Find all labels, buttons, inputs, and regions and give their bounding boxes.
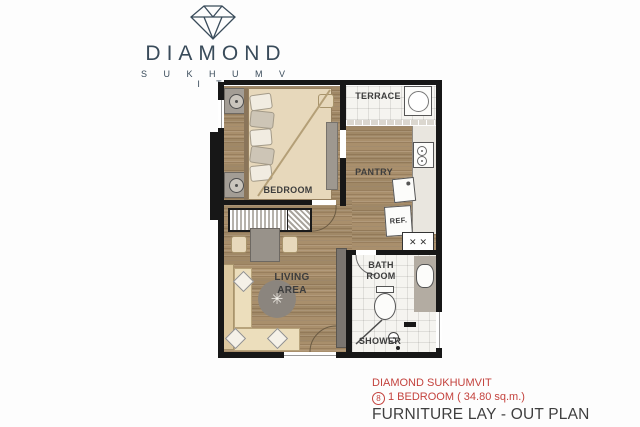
caption-unit: 8 1 BEDROOM ( 34.80 sq.m.) — [372, 392, 590, 405]
label-bedroom: BEDROOM — [258, 185, 318, 196]
brand-name: DIAMOND — [133, 42, 293, 66]
unit-number-badge: 8 — [372, 392, 385, 405]
floor-plan: ✳ REF. ✕✕ — [200, 78, 444, 360]
label-living: LIVING AREA — [266, 272, 318, 297]
caption-title: FURNITURE LAY - OUT PLAN — [372, 407, 590, 423]
plan-line-overlay — [200, 78, 444, 360]
label-terrace: TERRACE — [350, 91, 406, 102]
label-bathroom: BATH ROOM — [357, 260, 405, 283]
balcony-door-arc — [310, 326, 336, 352]
plan-caption: DIAMOND SUKHUMVIT 8 1 BEDROOM ( 34.80 sq… — [372, 378, 590, 423]
caption-unit-details: 1 BEDROOM ( 34.80 sq.m.) — [388, 392, 525, 404]
brand-logo: DIAMOND S U K H U M V I T — [133, 4, 293, 89]
floor-plan-page: DIAMOND S U K H U M V I T — [0, 0, 640, 427]
diamond-icon — [189, 4, 237, 41]
caption-project: DIAMOND SUKHUMVIT — [372, 378, 590, 390]
label-pantry: PANTRY — [350, 167, 398, 178]
label-shower: SHOWER — [354, 336, 406, 347]
bedroom-door-arc — [312, 205, 336, 231]
bed-fold-line — [258, 90, 330, 196]
